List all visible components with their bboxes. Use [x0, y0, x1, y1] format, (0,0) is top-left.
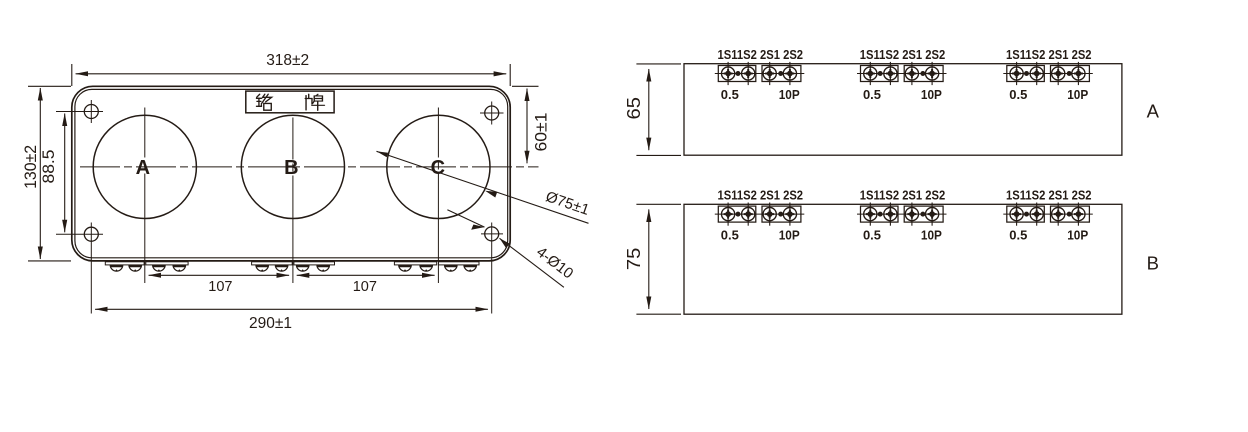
- svg-text:65: 65: [624, 97, 644, 120]
- svg-text:290±1: 290±1: [249, 315, 292, 332]
- svg-text:B: B: [1147, 252, 1159, 273]
- svg-text:B: B: [284, 157, 298, 179]
- svg-text:75: 75: [624, 248, 644, 271]
- svg-text:107: 107: [208, 279, 232, 295]
- svg-text:A: A: [1147, 100, 1160, 121]
- svg-text:107: 107: [353, 279, 377, 295]
- svg-text:60±1: 60±1: [532, 113, 551, 152]
- svg-text:Ø75±1: Ø75±1: [543, 188, 591, 219]
- svg-text:88.5: 88.5: [39, 150, 58, 184]
- svg-text:4-Ø10: 4-Ø10: [533, 244, 576, 283]
- svg-text:C: C: [431, 157, 445, 179]
- svg-text:318±2: 318±2: [266, 52, 309, 69]
- svg-text:A: A: [136, 157, 150, 179]
- svg-text:130±2: 130±2: [21, 145, 40, 189]
